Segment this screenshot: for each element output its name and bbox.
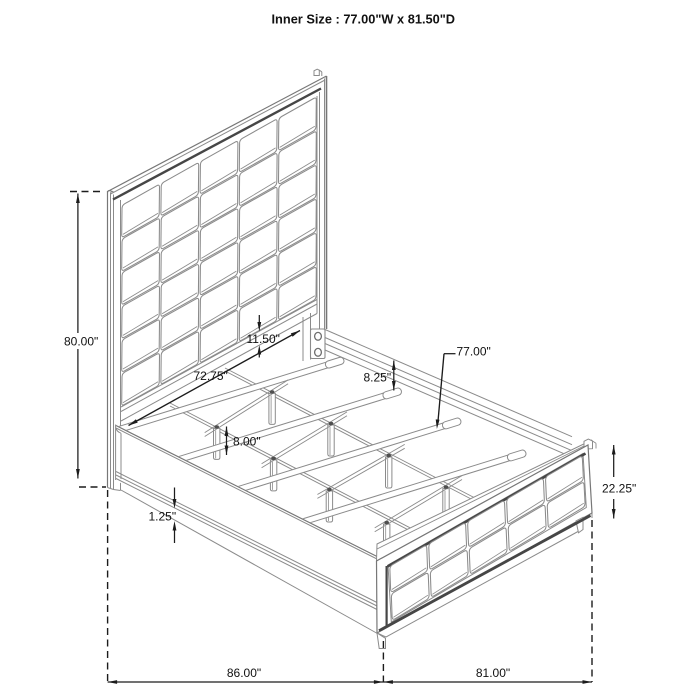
svg-text:1.25": 1.25" bbox=[149, 510, 177, 524]
svg-text:86.00": 86.00" bbox=[227, 666, 261, 680]
svg-text:22.25": 22.25" bbox=[602, 482, 636, 496]
svg-text:Inner Size : 77.00"W x 81.50"D: Inner Size : 77.00"W x 81.50"D bbox=[272, 12, 456, 27]
svg-text:11.50": 11.50" bbox=[247, 332, 280, 346]
svg-text:81.00": 81.00" bbox=[476, 666, 510, 680]
svg-text:8.00": 8.00" bbox=[233, 435, 261, 449]
svg-text:77.00": 77.00" bbox=[457, 345, 491, 359]
svg-text:72.75": 72.75" bbox=[194, 369, 228, 383]
svg-text:8.25": 8.25" bbox=[364, 371, 392, 385]
svg-text:80.00": 80.00" bbox=[64, 335, 98, 349]
